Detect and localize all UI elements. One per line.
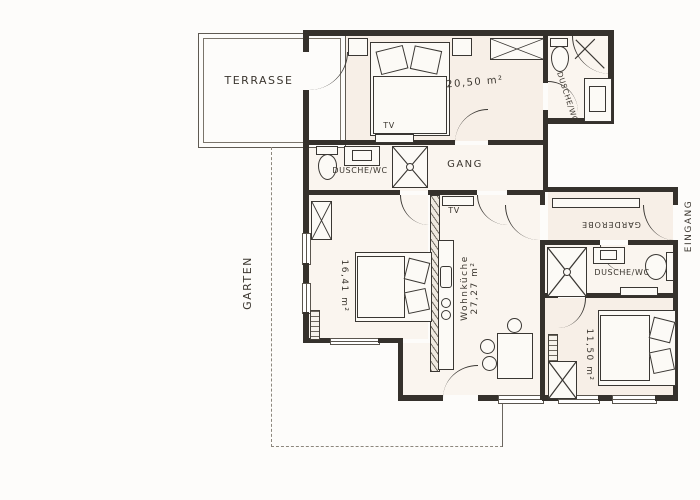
window bbox=[612, 395, 657, 404]
label-garten: GARTEN bbox=[241, 253, 255, 313]
wall bbox=[543, 187, 678, 192]
window bbox=[302, 233, 311, 265]
label-area-bedroom-left: 16,41 m² bbox=[338, 261, 350, 311]
nightstand bbox=[452, 38, 472, 56]
label-bath-right: DUSCHE/WC bbox=[592, 268, 652, 278]
garden-boundary-right bbox=[502, 403, 503, 447]
wardrobe-icon bbox=[490, 38, 544, 60]
wall bbox=[540, 190, 545, 205]
wall bbox=[303, 263, 309, 283]
hob-burner bbox=[441, 298, 451, 308]
garden-boundary-bottom bbox=[271, 446, 503, 447]
wall bbox=[478, 395, 498, 401]
floor-plan: TERRASSE GARTEN bbox=[0, 0, 700, 500]
label-eingang: EINGANG bbox=[683, 201, 695, 251]
chair bbox=[482, 356, 497, 371]
nightstand bbox=[348, 38, 368, 56]
label-garderobe: GARDEROBE bbox=[576, 218, 646, 230]
wall bbox=[398, 395, 443, 401]
label-wohnkueche-area: 27,27 m² bbox=[470, 262, 480, 315]
bed-mattress bbox=[600, 315, 650, 381]
wardrobe-icon bbox=[548, 361, 577, 399]
radiator bbox=[310, 310, 320, 340]
label-gang: GANG bbox=[440, 158, 490, 172]
toilet-tank bbox=[666, 252, 674, 281]
corner-shower bbox=[572, 36, 610, 74]
shower bbox=[392, 146, 428, 188]
wall bbox=[628, 240, 678, 245]
wall bbox=[598, 395, 612, 401]
label-wohnkueche-name: Wohnküche bbox=[460, 255, 470, 321]
label-tv-wohnkueche: TV bbox=[444, 206, 464, 216]
washbasin bbox=[589, 86, 606, 112]
window bbox=[330, 338, 380, 345]
chair bbox=[507, 318, 522, 333]
label-tv-bedroom-top: TV bbox=[379, 121, 399, 131]
wall bbox=[303, 190, 400, 195]
label-bath-mid: DUSCHE/WC bbox=[330, 166, 390, 176]
wall bbox=[543, 240, 600, 245]
wall bbox=[488, 140, 545, 145]
kitchen-sink bbox=[440, 266, 452, 288]
tv-shelf bbox=[442, 196, 474, 206]
wall bbox=[303, 30, 309, 52]
hob-burner bbox=[441, 310, 451, 320]
window bbox=[498, 395, 544, 404]
wardrobe-icon bbox=[311, 201, 332, 240]
radiator bbox=[548, 334, 558, 362]
garden-boundary-left bbox=[271, 147, 272, 447]
wall bbox=[303, 90, 309, 233]
label-area-bedroom-right: 11,50 m² bbox=[583, 330, 595, 380]
dining-table bbox=[497, 333, 533, 379]
pillow bbox=[649, 348, 675, 374]
wall bbox=[543, 110, 548, 192]
label-wohnkueche: Wohnküche 27,27 m² bbox=[457, 253, 483, 323]
pillow bbox=[404, 288, 430, 314]
sink-basin bbox=[352, 150, 372, 161]
sink-basin bbox=[600, 250, 617, 260]
bed-mattress bbox=[357, 256, 405, 318]
bench bbox=[620, 287, 658, 296]
label-terrasse: TERRASSE bbox=[214, 74, 304, 88]
wall bbox=[540, 240, 545, 400]
chair bbox=[480, 339, 495, 354]
wall bbox=[305, 30, 614, 36]
coat-rack bbox=[552, 198, 640, 208]
wall bbox=[398, 338, 403, 400]
tv-shelf bbox=[375, 134, 414, 143]
shower bbox=[547, 247, 587, 297]
